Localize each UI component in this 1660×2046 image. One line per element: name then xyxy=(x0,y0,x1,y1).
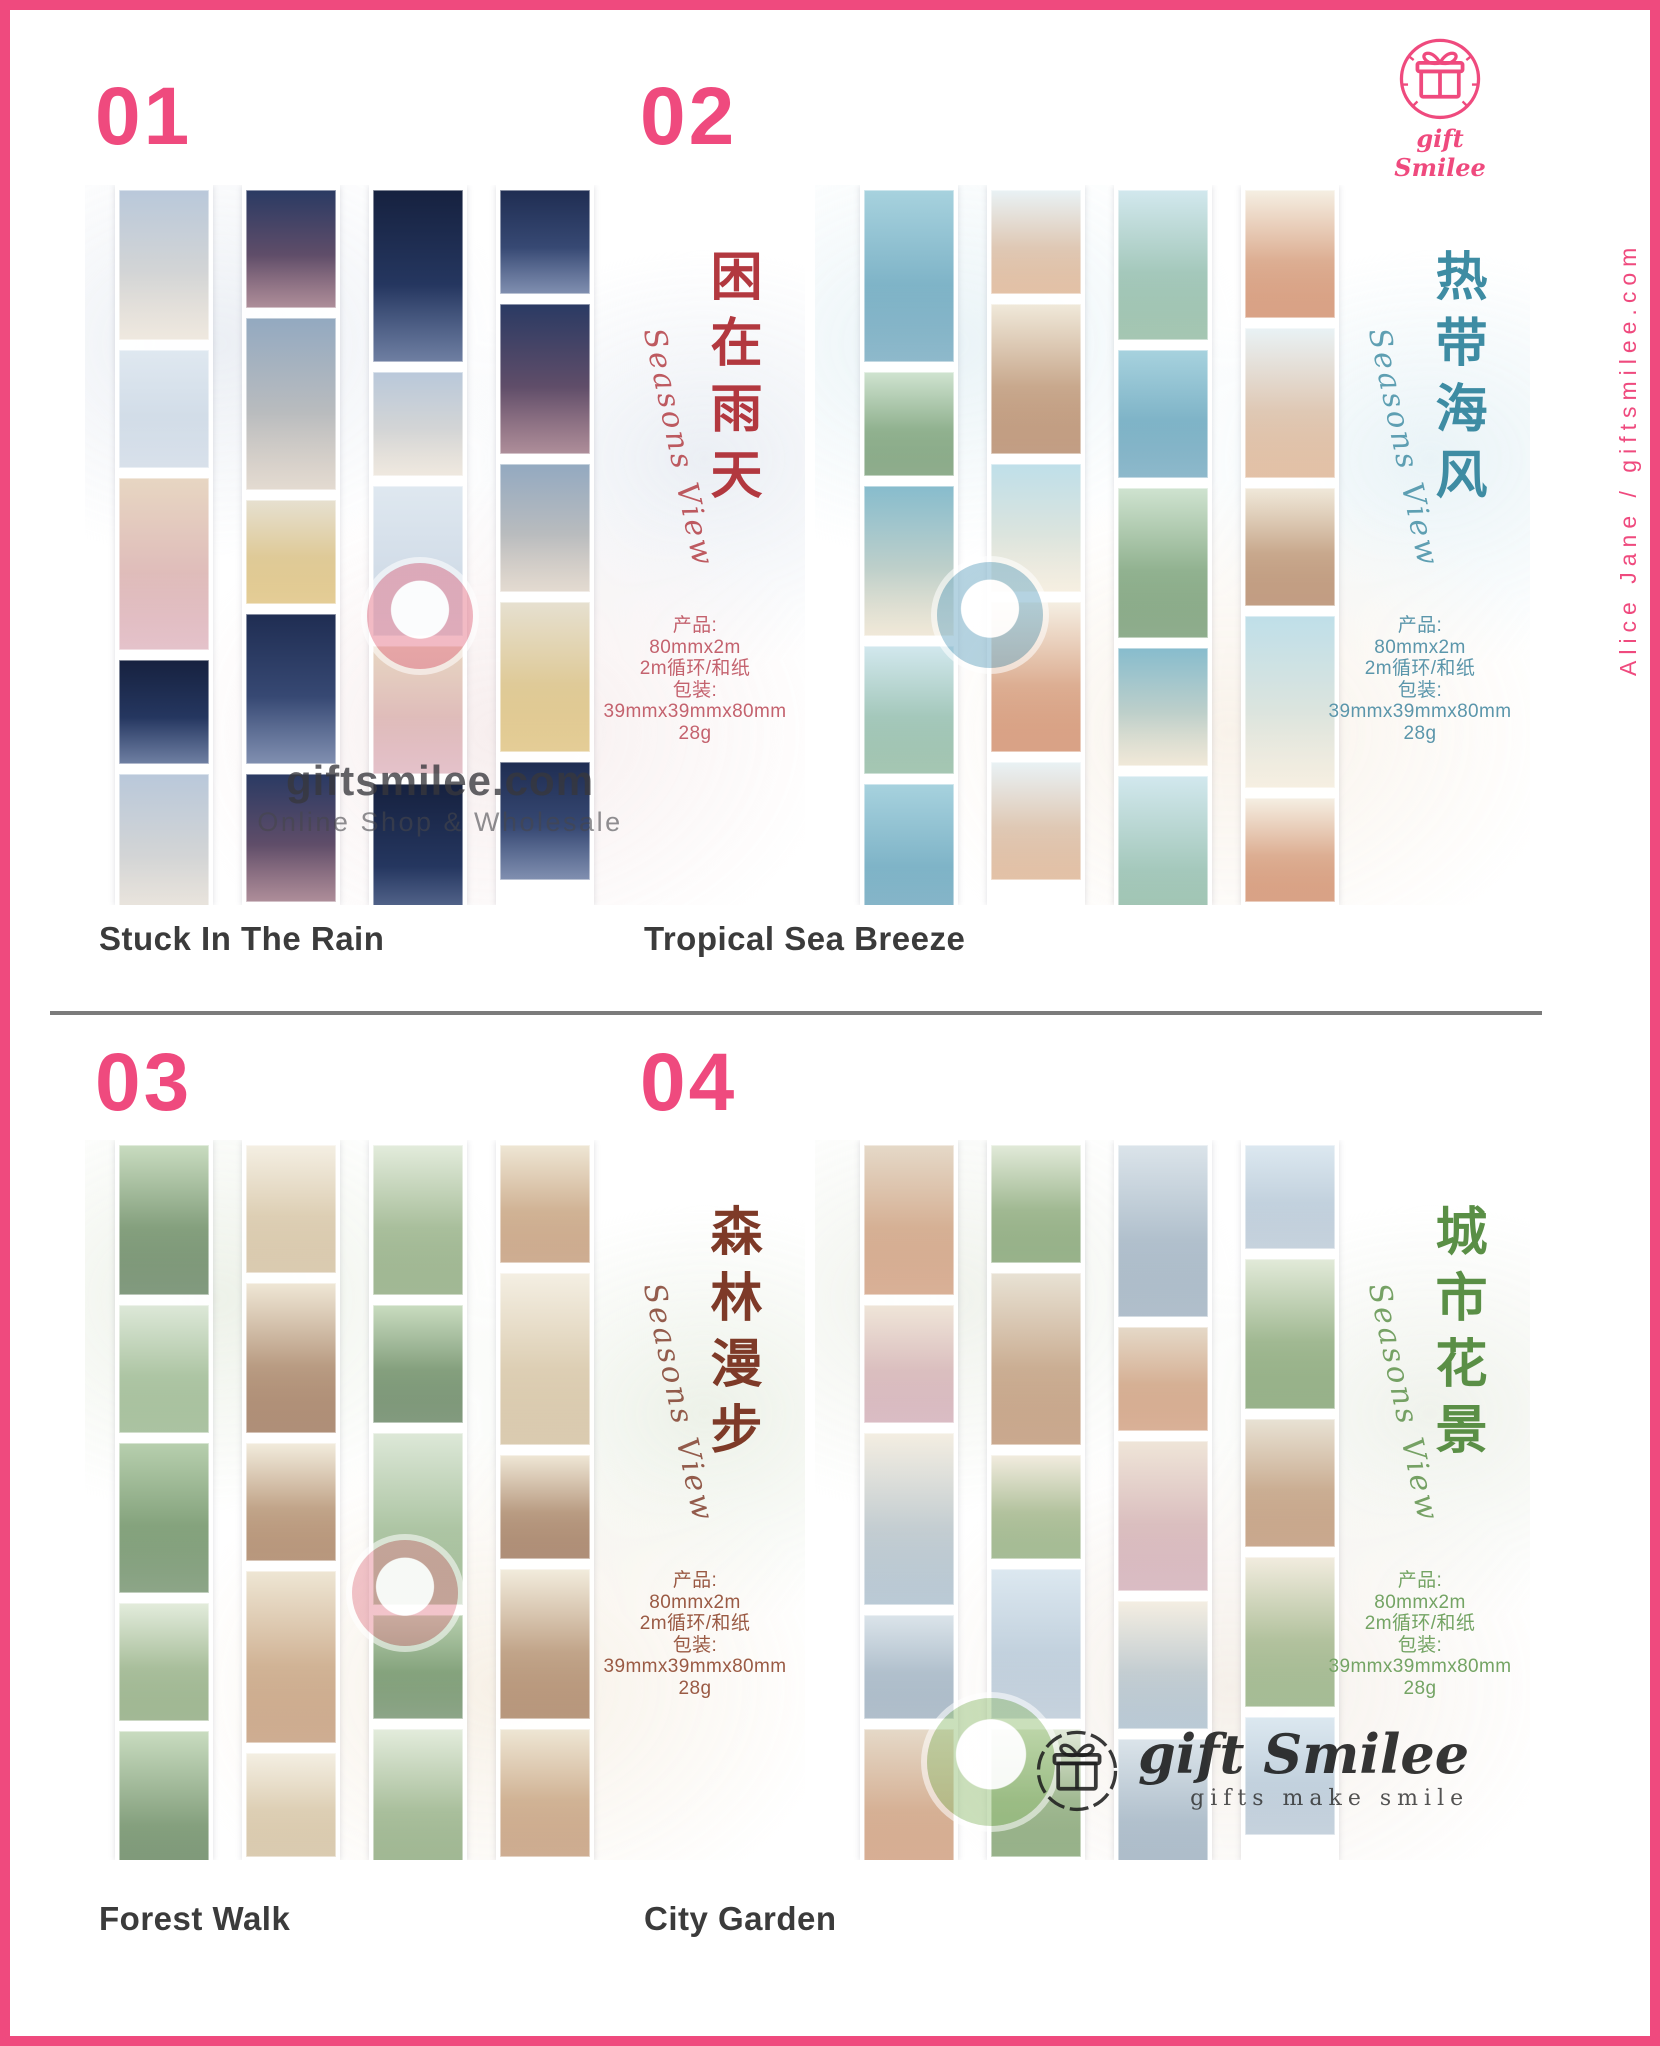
tape-scene-tile xyxy=(991,190,1081,294)
tape-scene-tile xyxy=(500,1455,590,1559)
tape-scene-tile xyxy=(1245,328,1335,478)
tape-scene-tile xyxy=(1118,488,1208,638)
tape-scene-tile xyxy=(500,464,590,592)
tape-roll-sticker xyxy=(367,563,473,669)
tape-scene-tile xyxy=(373,190,463,362)
tape-scene-tile xyxy=(1245,488,1335,606)
product-specs: 产品: 80mmx2m 2m循环/和纸 包装: 39mmx39mmx80mm 2… xyxy=(1320,615,1520,744)
tape-scene-tile xyxy=(991,762,1081,880)
washi-tape-strip xyxy=(115,1140,213,1860)
tape-scene-tile xyxy=(1245,1145,1335,1249)
watermark-tagline: Online Shop & Wholesale xyxy=(195,807,685,838)
tape-roll-sticker xyxy=(937,562,1043,668)
product-specs: 产品: 80mmx2m 2m循环/和纸 包装: 39mmx39mmx80mm 2… xyxy=(1320,1570,1520,1699)
tape-scene-tile xyxy=(864,1433,954,1605)
tape-scene-tile xyxy=(119,1145,209,1295)
brand-watermark-text: gift Smilee gifts make smile xyxy=(1138,1727,1469,1811)
tape-scene-tile xyxy=(500,1145,590,1263)
tape-scene-tile xyxy=(246,1443,336,1561)
tape-scene-tile xyxy=(864,646,954,774)
gift-box-stamp-icon xyxy=(1030,1722,1124,1816)
brand-logo-text: gift Smilee xyxy=(1378,124,1502,182)
washi-tape-strip xyxy=(1241,185,1339,905)
washi-tape-strip xyxy=(1114,185,1212,905)
washi-tape-strip xyxy=(987,185,1085,905)
tape-scene-tile xyxy=(1118,1327,1208,1431)
tape-scene-tile xyxy=(119,1731,209,1860)
washi-tape-strip xyxy=(242,1140,340,1860)
tape-scene-tile xyxy=(119,1443,209,1593)
tape-scene-tile xyxy=(500,1729,590,1857)
spec-line: 39mmx39mmx80mm xyxy=(1320,701,1520,723)
product-card-04: 04 Seasons View 城市花景 产品: 80mmx2m 2m循环/和纸… xyxy=(630,1030,1530,1942)
tape-scene-tile xyxy=(119,350,209,468)
tape-scene-tile xyxy=(119,190,209,340)
product-card-02: 02 Seasons View 热带海风 产品: 80mmx2m 2m循环/和纸… xyxy=(630,60,1530,962)
calligraphy-title: 城市花景 xyxy=(1429,1204,1484,1468)
tape-scene-tile xyxy=(500,602,590,752)
side-credit-text: Alice Jane / giftsmilee.com xyxy=(1615,36,1642,676)
tape-scene-tile xyxy=(1118,648,1208,766)
tape-scene-tile xyxy=(1118,1601,1208,1729)
product-name: Tropical Sea Breeze xyxy=(644,920,965,958)
tape-scene-tile xyxy=(246,614,336,764)
product-name: Forest Walk xyxy=(99,1900,290,1938)
site-watermark: giftsmilee.com Online Shop & Wholesale xyxy=(195,757,685,838)
spec-line: 80mmx2m xyxy=(1320,637,1520,659)
spec-line: 2m循环/和纸 xyxy=(1320,658,1520,680)
product-image-panel: Seasons View 城市花景 产品: 80mmx2m 2m循环/和纸 包装… xyxy=(815,1140,1530,1860)
spec-line: 39mmx39mmx80mm xyxy=(1320,1656,1520,1678)
spec-line: 80mmx2m xyxy=(1320,1592,1520,1614)
tape-scene-tile xyxy=(500,304,590,454)
spec-line: 28g xyxy=(1320,1678,1520,1700)
washi-tape-strip xyxy=(860,185,958,905)
product-name: Stuck In The Rain xyxy=(99,920,384,958)
tape-scene-tile xyxy=(991,304,1081,454)
brand-logo: gift Smilee xyxy=(1378,30,1502,182)
spec-line: 产品: xyxy=(1320,615,1520,637)
tape-scene-tile xyxy=(1118,190,1208,340)
brand-watermark: gift Smilee gifts make smile xyxy=(1030,1722,1469,1816)
gift-box-icon xyxy=(1393,30,1487,124)
washi-tape-strip xyxy=(496,1140,594,1860)
product-number: 03 xyxy=(95,1042,192,1124)
tape-scene-tile xyxy=(119,1603,209,1721)
tape-roll-sticker xyxy=(352,1540,458,1646)
tape-scene-tile xyxy=(1245,1419,1335,1547)
tape-scene-tile xyxy=(1245,798,1335,902)
tape-scene-tile xyxy=(991,1145,1081,1263)
tape-scene-tile xyxy=(500,1569,590,1719)
tape-scene-tile xyxy=(373,372,463,476)
spec-line: 产品: xyxy=(1320,1570,1520,1592)
tape-scene-tile xyxy=(119,1305,209,1433)
spec-line: 28g xyxy=(1320,723,1520,745)
spec-line: 包装: xyxy=(1320,1635,1520,1657)
tape-scene-tile xyxy=(1245,1259,1335,1409)
tape-scene-tile xyxy=(864,190,954,362)
tape-scene-tile xyxy=(991,1569,1081,1719)
tape-scene-tile xyxy=(246,1283,336,1433)
tape-scene-tile xyxy=(246,1145,336,1273)
tape-scene-tile xyxy=(500,190,590,294)
product-number: 04 xyxy=(640,1042,737,1124)
tape-scene-tile xyxy=(246,190,336,308)
tape-scene-tile xyxy=(500,1273,590,1445)
tape-scene-tile xyxy=(1118,1441,1208,1591)
tape-scene-tile xyxy=(864,784,954,905)
tape-scene-tile xyxy=(119,478,209,650)
product-name: City Garden xyxy=(644,1900,837,1938)
spec-line: 2m循环/和纸 xyxy=(1320,1613,1520,1635)
section-divider xyxy=(50,1011,1542,1015)
tape-scene-tile xyxy=(1118,350,1208,478)
tape-scene-tile xyxy=(1118,776,1208,905)
tape-scene-tile xyxy=(1245,190,1335,318)
product-image-panel: Seasons View 热带海风 产品: 80mmx2m 2m循环/和纸 包装… xyxy=(815,185,1530,905)
tape-scene-tile xyxy=(864,372,954,476)
watermark-domain: giftsmilee.com xyxy=(195,757,685,805)
tape-scene-tile xyxy=(991,1455,1081,1559)
tape-scene-tile xyxy=(246,318,336,490)
watermark-script: gift Smilee xyxy=(1138,1727,1469,1781)
tape-scene-tile xyxy=(864,1145,954,1295)
catalog-page: gift Smilee Alice Jane / giftsmilee.com … xyxy=(0,0,1660,2046)
tape-scene-tile xyxy=(373,1729,463,1860)
product-number: 02 xyxy=(640,76,737,158)
spec-line: 包装: xyxy=(1320,680,1520,702)
product-number: 01 xyxy=(95,76,192,158)
tape-scene-tile xyxy=(1118,1145,1208,1317)
tape-scene-tile xyxy=(373,1305,463,1423)
calligraphy-title: 热带海风 xyxy=(1429,249,1484,513)
tape-scene-tile xyxy=(864,1615,954,1719)
tape-scene-tile xyxy=(991,1273,1081,1445)
tape-scene-tile xyxy=(864,1305,954,1423)
tape-scene-tile xyxy=(373,1145,463,1295)
tape-scene-tile xyxy=(246,1753,336,1857)
watermark-tagline: gifts make smile xyxy=(1138,1786,1469,1811)
washi-tape-strip xyxy=(369,1140,467,1860)
tape-scene-tile xyxy=(246,1571,336,1743)
tape-scene-tile xyxy=(119,660,209,764)
tape-scene-tile xyxy=(246,500,336,604)
